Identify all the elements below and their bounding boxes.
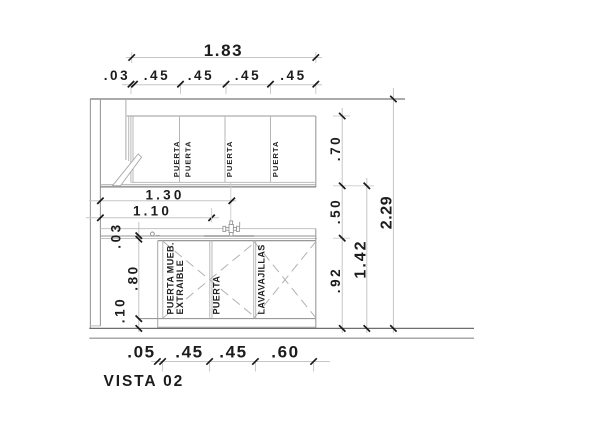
svg-text:.60: .60 <box>271 343 299 362</box>
svg-text:1.42: 1.42 <box>353 239 370 278</box>
svg-text:.03: .03 <box>104 68 131 83</box>
svg-text:.45: .45 <box>175 343 203 362</box>
svg-text:PUERTA: PUERTA <box>271 141 280 178</box>
svg-text:1.30: 1.30 <box>145 187 184 202</box>
svg-text:.10: .10 <box>113 297 128 324</box>
svg-text:.45: .45 <box>219 343 247 362</box>
svg-text:VISTA 02: VISTA 02 <box>104 373 185 390</box>
svg-text:1.83: 1.83 <box>204 41 244 60</box>
svg-text:.03: .03 <box>109 222 124 249</box>
svg-text:.45: .45 <box>280 68 307 83</box>
svg-text:.45: .45 <box>235 68 262 83</box>
svg-text:PUERTA: PUERTA <box>212 276 222 315</box>
svg-text:EXTRAIBLE: EXTRAIBLE <box>175 260 185 315</box>
svg-text:.50: .50 <box>328 198 343 225</box>
svg-text:PUERTA MUEB.: PUERTA MUEB. <box>166 242 176 314</box>
svg-text:2.29: 2.29 <box>379 196 396 230</box>
svg-text:PUERTA: PUERTA <box>183 141 192 178</box>
svg-text:1.10: 1.10 <box>133 204 172 219</box>
svg-text:PUERTA: PUERTA <box>172 141 181 178</box>
svg-text:.05: .05 <box>127 343 155 362</box>
svg-text:.80: .80 <box>125 264 140 291</box>
svg-text:PUERTA: PUERTA <box>225 141 234 178</box>
svg-text:LAVAVAJILLAS: LAVAVAJILLAS <box>257 244 267 314</box>
svg-text:.92: .92 <box>328 267 343 294</box>
svg-text:.70: .70 <box>328 135 343 162</box>
svg-text:.45: .45 <box>144 68 171 83</box>
svg-text:.45: .45 <box>188 68 215 83</box>
